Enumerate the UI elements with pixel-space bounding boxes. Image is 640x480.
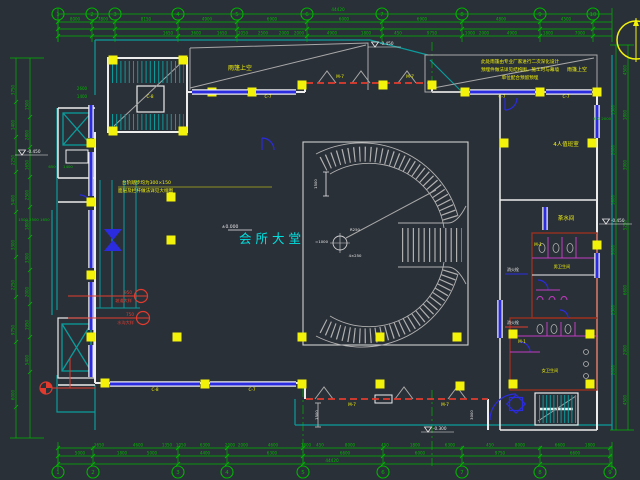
- column-marker: [179, 127, 188, 136]
- axis-centerlines: [303, 42, 432, 466]
- misc-text: 900 2000: [593, 116, 612, 121]
- dim-text: 1800: [611, 194, 616, 205]
- dim-text: 2000: [611, 364, 616, 375]
- dim-text: 6300: [445, 443, 456, 448]
- dim-text: 6900: [417, 17, 428, 22]
- room-label: 男卫生间: [554, 263, 571, 270]
- column-marker: [588, 139, 597, 148]
- level-text: -0.450: [27, 149, 41, 154]
- column-marker: [500, 139, 509, 148]
- dim-text: 2250: [11, 279, 16, 290]
- dim-text: 3000: [611, 244, 616, 255]
- doors: [80, 98, 568, 420]
- opening-tag: M-7: [441, 402, 449, 407]
- dim-text: 2500: [258, 31, 269, 36]
- opening-tag: M-7: [406, 74, 414, 79]
- revolving-door-icon: [104, 229, 122, 251]
- dim-text: 4900: [507, 31, 518, 36]
- room-label: 雨篷上空: [567, 66, 587, 73]
- dim-text: 1800: [623, 109, 628, 120]
- level-text: -0.450: [611, 218, 625, 223]
- opening-tag: C-7: [264, 94, 271, 99]
- dim-text: 4600: [133, 443, 144, 448]
- dim-text: 5000: [75, 451, 86, 456]
- dim-text: 1000: [465, 31, 476, 36]
- grand-stair: [303, 142, 468, 347]
- dim-text: 6600: [340, 451, 351, 456]
- north-arrow-icon: [617, 18, 640, 62]
- grid-bubble-label: 6: [305, 12, 309, 18]
- column-marker: [586, 330, 595, 339]
- grid-bubble-label: 9: [608, 470, 612, 476]
- level-triangle-icon: [425, 427, 432, 432]
- dim-text: 1650: [25, 159, 30, 170]
- dim-text: 4400: [200, 451, 211, 456]
- dim-text: 6600: [570, 451, 581, 456]
- opening-tag: C-7: [248, 387, 255, 392]
- dim-text: 4500: [561, 17, 572, 22]
- grid-bubble-label: 6: [381, 470, 385, 476]
- misc-text: 650: [48, 164, 56, 169]
- dim-text: 6000: [11, 389, 16, 400]
- misc-text: 3000: [469, 410, 474, 420]
- dim-text: 8000: [345, 443, 356, 448]
- dim-text: 2500: [611, 304, 616, 315]
- dim-text: 7000: [575, 31, 586, 36]
- dim-text: 2500: [25, 189, 30, 200]
- dim-text: 450: [394, 31, 402, 36]
- column-marker: [173, 333, 182, 342]
- grid-bubble-label: 1: [56, 470, 60, 476]
- column-marker: [593, 88, 602, 97]
- callout-text: 750: [126, 312, 134, 317]
- column-marker: [453, 333, 462, 342]
- dim-text: 2000: [611, 144, 616, 155]
- column-marker: [376, 333, 385, 342]
- dim-text: 1800: [543, 31, 554, 36]
- column-marker: [376, 380, 385, 389]
- grid-bubble-label: 7: [380, 12, 384, 18]
- dim-text: 5400: [25, 354, 30, 365]
- dim-text: 6300: [267, 451, 278, 456]
- dim-text: 2000: [25, 286, 30, 297]
- dim-text: 4500: [623, 64, 628, 75]
- room-label: 会所大堂: [239, 231, 305, 246]
- dim-text: 2000: [479, 31, 490, 36]
- opening-tag: M-7: [348, 402, 356, 407]
- dim-text: 9750: [11, 324, 16, 335]
- room-label: 女卫生间: [542, 367, 559, 374]
- misc-text: 1500: [313, 179, 318, 189]
- level-triangle-icon: [19, 150, 26, 155]
- column-marker: [298, 380, 307, 389]
- dim-text: 6300: [200, 443, 211, 448]
- room-label: 此处雨篷由专业厂家进行二次深化设计: [481, 58, 560, 65]
- dim-text: 4500: [623, 394, 628, 405]
- room-label: 茶水间: [558, 214, 575, 222]
- dim-text: 2000: [225, 443, 236, 448]
- dim-text: 2000: [238, 443, 249, 448]
- opening-tag: C-8: [151, 387, 158, 392]
- dim-text: 450: [486, 443, 494, 448]
- dim-text: 3900: [623, 159, 628, 170]
- column-marker: [428, 81, 437, 90]
- grid-bubble-label: 7: [460, 470, 464, 476]
- column-marker: [179, 56, 188, 65]
- column-marker: [586, 380, 595, 389]
- dim-text: 7800: [98, 17, 109, 22]
- column-marker: [167, 236, 176, 245]
- dim-text: 1950: [25, 319, 30, 330]
- dim-text: 2000: [279, 31, 290, 36]
- total-dim-text: 44420: [331, 7, 345, 12]
- dim-text: 450: [316, 443, 324, 448]
- dim-text: 1800: [117, 451, 128, 456]
- grid-bubble-label: 9: [538, 12, 542, 18]
- column-marker: [248, 88, 257, 97]
- stair-treads: [112, 72, 576, 409]
- dim-text: 2900: [623, 344, 628, 355]
- dim-text: 6000: [415, 451, 426, 456]
- floor-plan-drawing: 12345678910123456789 8000780081504900690…: [0, 0, 640, 480]
- room-label: 台阶踏步均为300×150: [122, 179, 171, 186]
- level-triangle-icon: [372, 42, 379, 47]
- misc-text: 2600: [77, 86, 88, 91]
- callout-text: 坡道大样: [115, 297, 132, 304]
- room-label: 4人值班室: [553, 140, 579, 148]
- dim-text: 3750: [11, 84, 16, 95]
- dim-text: 1400: [11, 119, 16, 130]
- grid-bubble-label: 3: [176, 470, 180, 476]
- column-marker: [593, 241, 602, 250]
- vehicle-ramp: [96, 180, 140, 308]
- grid-bubble-label: 5: [301, 470, 305, 476]
- dim-text: 1650: [163, 31, 174, 36]
- dim-text: 2000: [294, 31, 305, 36]
- misc-text: 消火栓: [507, 319, 519, 325]
- grid-bubble-label: 8: [460, 12, 464, 18]
- misc-text: ±0.000: [222, 224, 239, 230]
- opening-tag: M-7: [336, 74, 344, 79]
- misc-text: 1500 2500 1650: [18, 217, 50, 222]
- dim-text: 2800: [25, 129, 30, 140]
- column-marker: [87, 198, 96, 207]
- dim-text: 1050: [176, 443, 187, 448]
- grid-bubble-label: 4: [225, 470, 229, 476]
- dim-text: 8000: [515, 443, 526, 448]
- level-text: -0.300: [433, 426, 447, 431]
- column-marker: [109, 56, 118, 65]
- opening-tag: C-7: [498, 94, 505, 99]
- misc-text: 1400: [63, 164, 73, 169]
- dim-text: 6900: [267, 17, 278, 22]
- dim-text: 4800: [496, 17, 507, 22]
- room-label: 预埋件做法详见结构图，施工时与幕墙: [481, 66, 560, 73]
- room-label: 单位配合预留预埋: [502, 74, 539, 81]
- dim-text: 5000: [147, 451, 158, 456]
- dim-text: 1650: [94, 443, 105, 448]
- column-marker: [536, 88, 545, 97]
- misc-text: 1400: [77, 94, 88, 99]
- grid-bubble-label: 2: [91, 470, 95, 476]
- callout-text: 950: [124, 290, 132, 295]
- dim-text: 9750: [495, 451, 506, 456]
- misc-text: 4×250: [349, 253, 362, 258]
- door-window-tags: C-8C-7C-7C-7C-8C-7M-7M-7M-7M-7M-1M-1: [146, 74, 569, 407]
- column-marker: [509, 380, 518, 389]
- dim-text: 450: [381, 443, 389, 448]
- grid-bubble-label: 3: [113, 12, 117, 18]
- column-marker: [109, 127, 118, 136]
- dim-text: 1800: [410, 443, 421, 448]
- dim-text: 3600: [191, 31, 202, 36]
- column-marker: [456, 382, 465, 391]
- toilet-fixtures: [510, 237, 597, 379]
- dim-text: 1350: [162, 443, 173, 448]
- dim-text: 1650: [217, 31, 228, 36]
- opening-tag: C-8: [146, 94, 153, 99]
- dim-text: 3300: [25, 252, 30, 263]
- misc-text: R250: [350, 227, 360, 232]
- room-label: 面层及栏杆做法详见大样图: [118, 187, 174, 194]
- dim-text: 4900: [202, 17, 213, 22]
- grid-bubble-label: 8: [538, 470, 542, 476]
- misc-text: =1000: [315, 239, 328, 244]
- level-text: -0.450: [380, 41, 394, 46]
- misc-texts: 2600140065014001500 2500 1650900 2000150…: [18, 86, 611, 420]
- dim-text: 1500: [25, 99, 30, 110]
- column-marker: [87, 333, 96, 342]
- dim-text: 1050: [238, 31, 249, 36]
- room-label: 雨篷上空: [228, 64, 252, 72]
- dim-text: 9750: [427, 31, 438, 36]
- dim-text: 1800: [361, 31, 372, 36]
- opening-tag: M-1: [518, 339, 526, 344]
- grid-bubble-label: 1: [56, 12, 60, 18]
- misc-text: 1500: [314, 410, 319, 420]
- dim-text: 6600: [623, 284, 628, 295]
- column-marker: [87, 271, 96, 280]
- walls: [58, 58, 597, 430]
- dim-text: 5400: [11, 194, 16, 205]
- dim-text: 4900: [327, 31, 338, 36]
- opening-tag: C-7: [562, 94, 569, 99]
- dim-text: 2250: [11, 154, 16, 165]
- grid-bubble-label: 5: [235, 12, 239, 18]
- dim-text: 1800: [585, 443, 596, 448]
- dim-text: 3300: [11, 239, 16, 250]
- column-marker: [298, 81, 307, 90]
- dim-text: 6000: [339, 17, 350, 22]
- level-triangle-icon: [603, 219, 610, 224]
- column-marker: [87, 139, 96, 148]
- grid-bubble-label: 2: [90, 12, 94, 18]
- dim-text: 8150: [141, 17, 152, 22]
- column-marker: [509, 330, 518, 339]
- grid-bubble-label: 4: [176, 12, 180, 18]
- grid-bubble-label: 10: [590, 12, 597, 18]
- callout-text: 水沟大样: [117, 319, 134, 326]
- column-marker: [298, 333, 307, 342]
- column-marker: [379, 81, 388, 90]
- opening-tag: M-1: [534, 242, 542, 247]
- dim-text: 1500: [611, 104, 616, 115]
- column-marker: [461, 88, 470, 97]
- dim-text: 1800: [301, 443, 312, 448]
- dim-text: 6600: [555, 443, 566, 448]
- column-marker: [101, 379, 110, 388]
- column-marker: [201, 380, 210, 389]
- cad-floor-plan-canvas: 12345678910123456789 8000780081504900690…: [0, 0, 640, 480]
- dim-text: 4600: [268, 443, 279, 448]
- dim-text: 8000: [70, 17, 81, 22]
- total-dim-text: 44420: [325, 458, 339, 463]
- misc-text: 消火栓: [507, 266, 519, 272]
